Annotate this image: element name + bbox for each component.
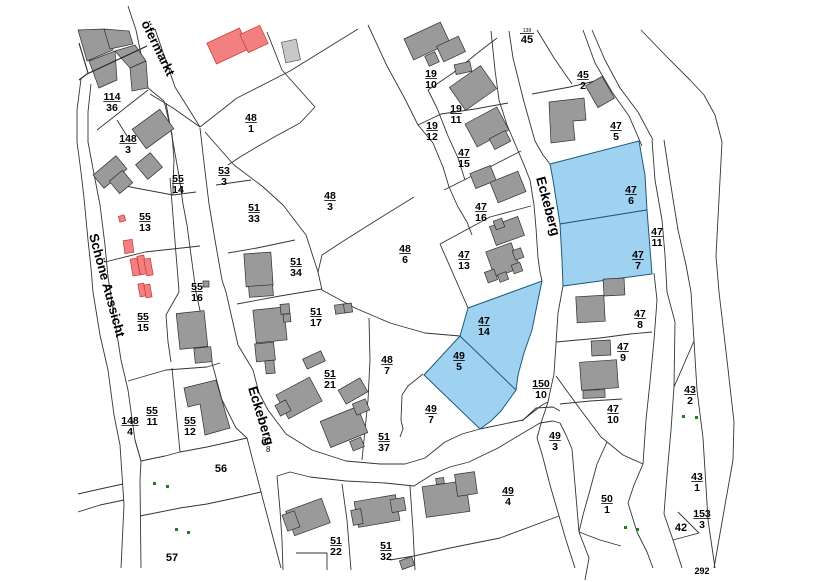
svg-text:7: 7 [384,365,390,377]
svg-text:11: 11 [146,416,157,428]
svg-text:13: 13 [139,222,151,234]
svg-text:6: 6 [628,195,634,207]
svg-text:22: 22 [330,546,342,558]
svg-text:34: 34 [290,267,302,279]
svg-text:57: 57 [166,552,178,564]
svg-text:14: 14 [172,184,184,196]
svg-text:1: 1 [694,482,700,494]
svg-text:56: 56 [215,463,227,475]
svg-text:10: 10 [607,414,619,426]
svg-text:12: 12 [426,131,438,143]
svg-text:21: 21 [324,379,336,391]
svg-text:15: 15 [458,158,470,170]
svg-text:5: 5 [456,361,462,373]
svg-text:2: 2 [687,395,693,407]
svg-text:2: 2 [580,80,586,92]
svg-text:10: 10 [425,79,437,91]
svg-text:4: 4 [127,426,133,438]
svg-text:11: 11 [651,237,662,249]
svg-text:36: 36 [106,102,118,114]
svg-text:12: 12 [184,426,196,438]
svg-text:10: 10 [535,389,547,401]
svg-text:3: 3 [552,441,558,453]
svg-text:9: 9 [620,352,626,364]
svg-text:3: 3 [221,176,227,188]
svg-text:6: 6 [402,254,408,266]
svg-text:33: 33 [248,213,260,225]
svg-text:45: 45 [521,34,533,46]
svg-text:11: 11 [450,114,461,126]
svg-text:4: 4 [505,496,511,508]
svg-text:37: 37 [378,442,390,454]
svg-text:14: 14 [478,326,490,338]
svg-text:7: 7 [635,260,641,272]
svg-text:292: 292 [694,566,709,576]
svg-text:3: 3 [327,201,333,213]
svg-text:16: 16 [475,212,487,224]
svg-text:3: 3 [699,519,705,531]
svg-text:17: 17 [310,317,322,329]
svg-text:8: 8 [266,445,271,454]
svg-text:5: 5 [613,131,619,143]
svg-text:13: 13 [458,260,470,272]
svg-text:8: 8 [637,319,643,331]
svg-text:7: 7 [428,414,434,426]
svg-text:1: 1 [604,504,610,516]
svg-text:1: 1 [248,123,254,135]
svg-text:3: 3 [125,144,131,156]
svg-text:15: 15 [137,322,149,334]
svg-text:42: 42 [675,522,687,534]
svg-text:16: 16 [191,292,203,304]
svg-text:32: 32 [380,551,392,563]
